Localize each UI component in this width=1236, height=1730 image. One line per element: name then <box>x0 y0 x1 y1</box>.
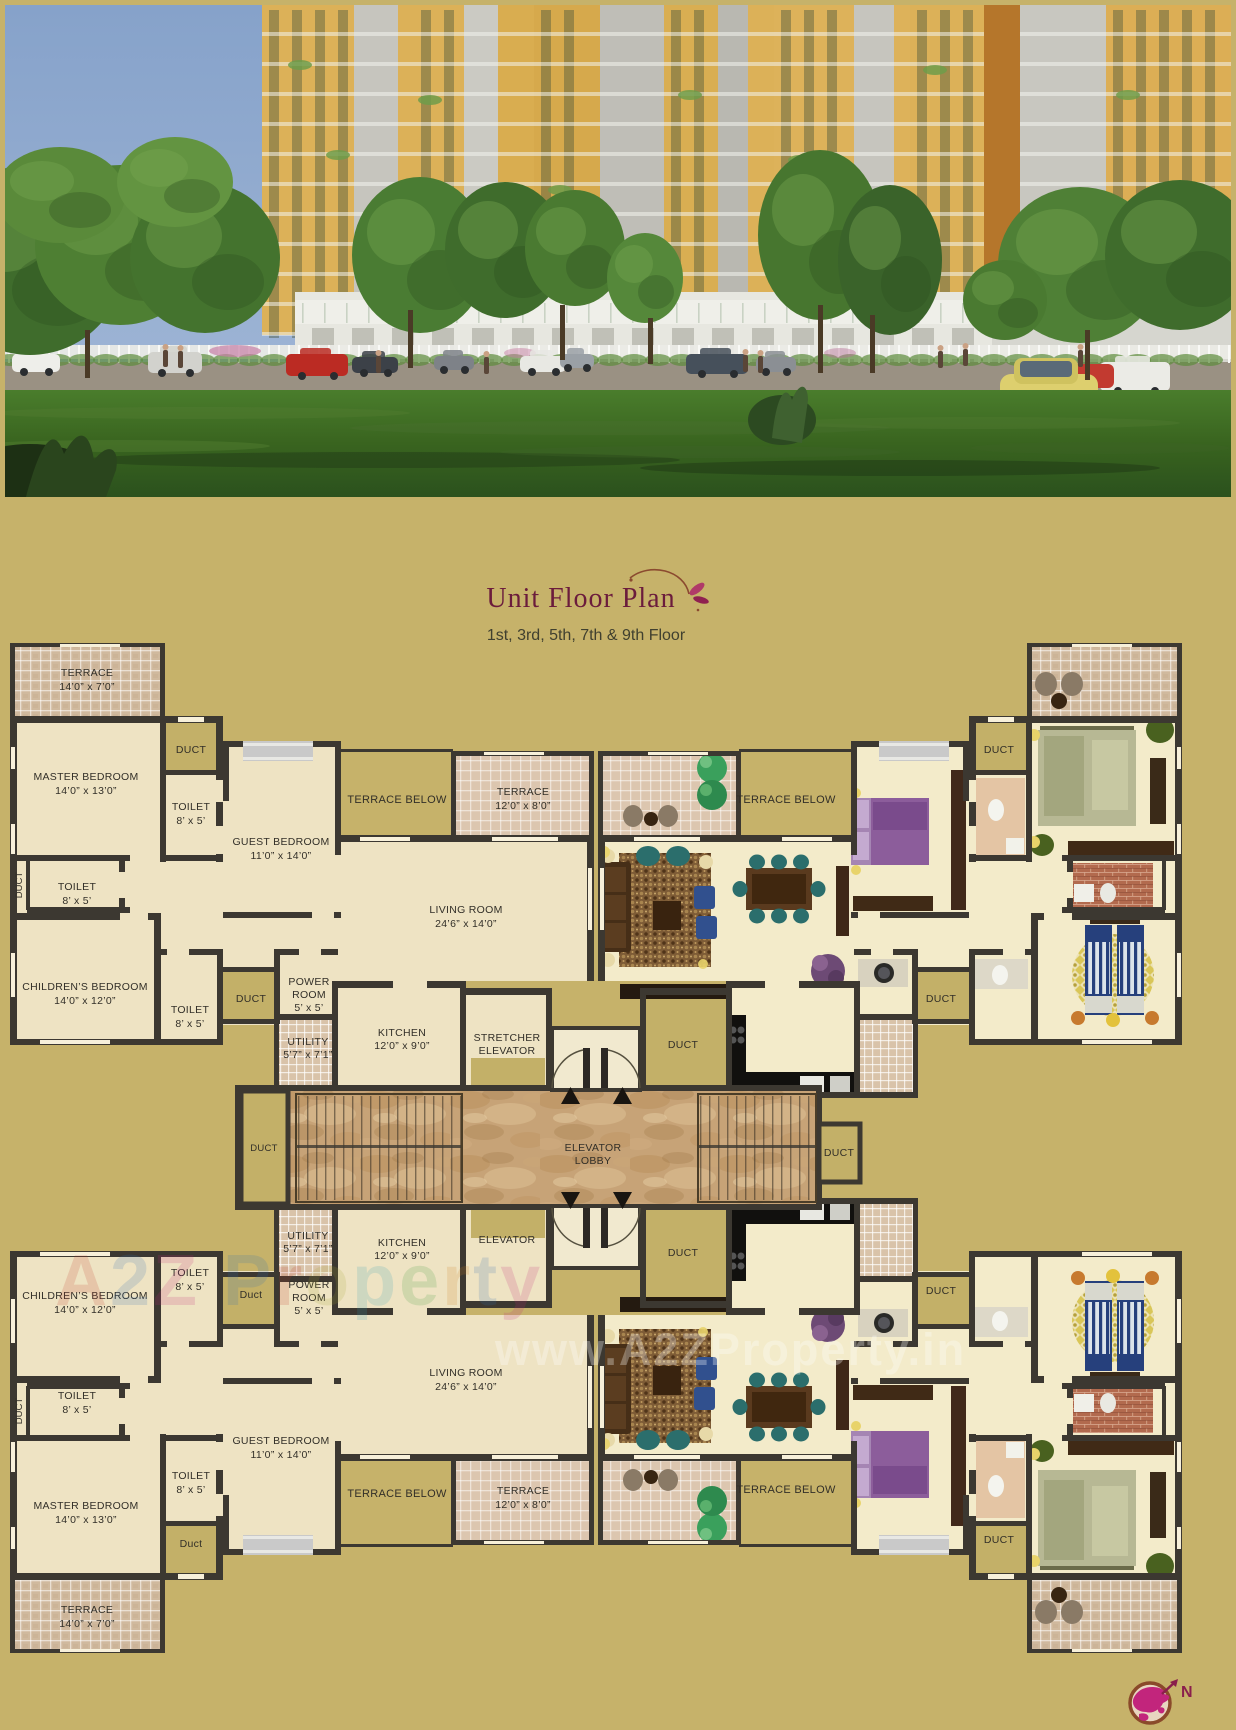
svg-text:DUCT: DUCT <box>668 1039 699 1051</box>
svg-text:DUCT: DUCT <box>14 872 25 899</box>
svg-text:24’6” x 14’0”: 24’6” x 14’0” <box>435 1381 497 1393</box>
svg-text:5’ x 5’: 5’ x 5’ <box>294 1002 323 1014</box>
svg-text:14’0” x 7’0”: 14’0” x 7’0” <box>59 1618 115 1630</box>
svg-text:TERRACE: TERRACE <box>61 1604 113 1616</box>
svg-text:12’0” x 9’0”: 12’0” x 9’0” <box>374 1040 430 1052</box>
svg-text:11’0” x 14’0”: 11’0” x 14’0” <box>251 1449 312 1461</box>
svg-text:DUCT: DUCT <box>250 1143 278 1154</box>
svg-text:LIVING ROOM: LIVING ROOM <box>429 1367 502 1379</box>
svg-text:14’0” x 12’0”: 14’0” x 12’0” <box>54 995 116 1007</box>
svg-text:TERRACE: TERRACE <box>497 786 549 798</box>
svg-text:8’ x 5’: 8’ x 5’ <box>62 895 91 907</box>
svg-text:8’ x 5’: 8’ x 5’ <box>175 1018 204 1030</box>
svg-text:DUCT: DUCT <box>926 1285 957 1297</box>
svg-text:DUCT: DUCT <box>668 1247 699 1259</box>
svg-text:ROOM: ROOM <box>292 989 326 1001</box>
svg-text:TOILET: TOILET <box>171 1004 210 1016</box>
svg-text:14’0” x 13’0”: 14’0” x 13’0” <box>55 1514 117 1526</box>
svg-text:8’ x 5’: 8’ x 5’ <box>62 1404 91 1416</box>
svg-text:STRETCHER: STRETCHER <box>474 1032 541 1044</box>
svg-text:LIVING ROOM: LIVING ROOM <box>429 904 502 916</box>
svg-text:TERRACE: TERRACE <box>61 667 113 679</box>
svg-text:DUCT: DUCT <box>236 993 267 1005</box>
svg-text:GUEST BEDROOM: GUEST BEDROOM <box>232 1435 329 1447</box>
svg-text:CHILDREN’S BEDROOM: CHILDREN’S BEDROOM <box>22 981 148 993</box>
svg-text:DUCT: DUCT <box>14 1398 25 1425</box>
svg-text:DUCT: DUCT <box>984 744 1015 756</box>
svg-text:8’ x 5’: 8’ x 5’ <box>176 1484 205 1496</box>
svg-text:12’0” x 8’0”: 12’0” x 8’0” <box>495 800 551 812</box>
svg-text:UTILITY: UTILITY <box>287 1036 328 1048</box>
svg-text:11’0” x 14’0”: 11’0” x 14’0” <box>251 850 312 862</box>
svg-text:TERRACE BELOW: TERRACE BELOW <box>736 1484 836 1496</box>
svg-text:12’0” x 8’0”: 12’0” x 8’0” <box>495 1499 551 1511</box>
svg-text:14’0” x 13’0”: 14’0” x 13’0” <box>55 785 117 797</box>
svg-text:GUEST BEDROOM: GUEST BEDROOM <box>232 836 329 848</box>
svg-text:TOILET: TOILET <box>172 1470 211 1482</box>
svg-text:TERRACE BELOW: TERRACE BELOW <box>736 794 836 806</box>
svg-text:TERRACE: TERRACE <box>497 1485 549 1497</box>
svg-text:DUCT: DUCT <box>176 744 207 756</box>
svg-text:TERRACE BELOW: TERRACE BELOW <box>347 1488 447 1500</box>
svg-text:ELEVATOR: ELEVATOR <box>479 1045 536 1057</box>
svg-text:5’7” x 7’1”: 5’7” x 7’1” <box>283 1049 333 1061</box>
svg-text:POWER: POWER <box>288 976 329 988</box>
svg-text:KITCHEN: KITCHEN <box>378 1027 426 1039</box>
svg-text:24’6” x 14’0”: 24’6” x 14’0” <box>435 918 497 930</box>
svg-text:14’0” x 7’0”: 14’0” x 7’0” <box>59 681 115 693</box>
svg-text:TOILET: TOILET <box>58 881 97 893</box>
svg-text:ELEVATOR: ELEVATOR <box>565 1142 622 1154</box>
svg-text:DUCT: DUCT <box>824 1147 855 1159</box>
svg-text:MASTER BEDROOM: MASTER BEDROOM <box>33 771 138 783</box>
svg-text:LOBBY: LOBBY <box>575 1155 612 1167</box>
svg-text:TERRACE BELOW: TERRACE BELOW <box>347 794 447 806</box>
svg-text:8’ x 5’: 8’ x 5’ <box>176 815 205 827</box>
svg-text:DUCT: DUCT <box>984 1534 1015 1546</box>
svg-text:TOILET: TOILET <box>58 1390 97 1402</box>
svg-text:DUCT: DUCT <box>926 993 957 1005</box>
svg-text:MASTER BEDROOM: MASTER BEDROOM <box>33 1500 138 1512</box>
svg-text:Duct: Duct <box>180 1538 203 1550</box>
svg-text:TOILET: TOILET <box>172 801 211 813</box>
svg-text:N: N <box>1181 1684 1193 1701</box>
